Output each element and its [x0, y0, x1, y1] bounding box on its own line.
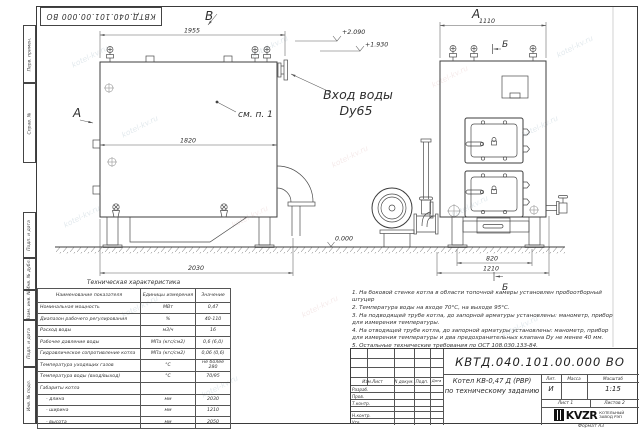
- note-item: 1. На боковой стенке котла в области топ…: [352, 290, 613, 304]
- tb-col-data: Дата: [430, 379, 443, 383]
- safety-valve-icon: [107, 47, 114, 63]
- drain-valve-icon: [221, 204, 228, 217]
- spec-value: не более 280: [196, 359, 231, 371]
- spec-table: Наименование показателя Единицы измерени…: [37, 288, 231, 429]
- gas-duct-elbow: [277, 166, 315, 236]
- spec-units: МПа (кгс/см2): [141, 337, 196, 348]
- furnace-door-lower: [465, 171, 530, 217]
- spec-name: Диапазон рабочего регулирования: [38, 314, 141, 325]
- inlet-dn-label: Dy65: [340, 103, 373, 118]
- spec-value: 0,06 (0,6): [196, 348, 231, 359]
- tb-scale-label: Масштаб: [587, 376, 639, 381]
- spec-name: Гидравлическое сопротивление котла: [38, 348, 141, 359]
- spec-value: 2030: [196, 394, 231, 405]
- safety-valve-icon: [530, 46, 537, 62]
- spec-units: °С: [141, 371, 196, 382]
- tb-lit-value: И: [541, 385, 561, 393]
- door-hinge: [523, 129, 530, 135]
- spec-name: Температура уходящих газов: [38, 359, 141, 371]
- table-row: - ширинамм1210: [38, 405, 231, 416]
- spec-name: Номинальная мощность: [38, 303, 141, 314]
- boiler-legs-front: [448, 217, 544, 248]
- product-title: Котел КВ-0,47 Д (РВР) по техническому за…: [443, 376, 541, 396]
- safety-valve-icon: [450, 46, 457, 62]
- tb-mass-label: Масса: [561, 376, 587, 381]
- drain-valve-icon: [113, 204, 120, 217]
- boiler-side-view: 1955 1820 2030 +2.090 +1.930 0.000 В А с…: [72, 9, 393, 276]
- table-row: Номинальная мощностьМВт0,47: [38, 303, 231, 314]
- view-label-a: А: [471, 7, 480, 21]
- tb-sheet: Лист 1: [541, 401, 590, 406]
- safety-valve-icon: [252, 47, 259, 63]
- table-row: Гидравлическое сопротивление котлаМПа (к…: [38, 348, 231, 359]
- table-row: Рабочее давление водыМПа (кгс/см2)0,6 (6…: [38, 337, 231, 348]
- section-mark-b-bottom: [494, 272, 503, 281]
- tb-lit-label: Лит.: [541, 376, 561, 381]
- spec-table-title: Техническая характеристика: [37, 279, 230, 286]
- dim-2030: 2030: [188, 265, 204, 272]
- water-inlet-flange: [278, 60, 288, 80]
- table-row: Диапазон рабочего регулирования%40-110: [38, 314, 231, 325]
- kvzr-logo-mark: [554, 409, 564, 421]
- kvzr-logo-caption: КОТЕЛЬНЫЙ ЗАВОД РЭП: [599, 411, 624, 420]
- spec-name: Расход воды: [38, 325, 141, 336]
- tb-role-tkontr: Т.контр.: [352, 401, 394, 406]
- spec-value: 0,6 (6,0): [196, 337, 231, 348]
- technical-notes: 1. На боковой стенке котла в области топ…: [352, 290, 613, 351]
- spec-header-row: Наименование показателя Единицы измерени…: [38, 289, 231, 303]
- dimensions-front: [437, 22, 549, 276]
- tb-scale-value: 1:15: [587, 385, 639, 393]
- table-row: Расход водым3/ч16: [38, 325, 231, 336]
- product-title-line2: по техническому заданию: [443, 386, 541, 396]
- furnace-door-upper: [465, 118, 530, 163]
- spec-units: мм: [141, 405, 196, 416]
- level-marks: [295, 36, 364, 247]
- view-arrow-a: А: [72, 106, 81, 120]
- spec-name: Габариты котла: [38, 383, 141, 394]
- spec-name: - ширина: [38, 405, 141, 416]
- note-item: 4. На отводящей трубе котла, до запорной…: [352, 328, 613, 342]
- outlet-pipe-valve: [420, 139, 433, 214]
- dim-1955: 1955: [184, 28, 200, 35]
- spec-units: м3/ч: [141, 325, 196, 336]
- format-label: Формат А3: [578, 424, 604, 429]
- product-title-line1: Котел КВ-0,47 Д (РВР): [443, 376, 541, 386]
- control-panel: [502, 76, 528, 98]
- spec-units: МВт: [141, 303, 196, 314]
- dimensions-side: [100, 31, 293, 276]
- level-plus-1930: +1.930: [365, 42, 388, 49]
- title-block: КВТД.040.101.00.000 ВО Изм.Лист N докум.…: [350, 348, 638, 424]
- left-connection: [422, 202, 433, 227]
- kvzr-logo: KVZR КОТЕЛЬНЫЙ ЗАВОД РЭП: [541, 407, 637, 423]
- dim-1820: 1820: [180, 138, 196, 145]
- spec-value: 70/95: [196, 371, 231, 382]
- tb-role-razrab: Разраб.: [352, 387, 394, 392]
- spec-units: °С: [141, 359, 196, 371]
- tb-col-ndokum: N докум.: [394, 379, 414, 384]
- safety-valve-icon: [471, 46, 478, 62]
- fan-stand: [380, 230, 414, 234]
- safety-valve-icon: [264, 47, 271, 63]
- dim-820: 820: [486, 256, 498, 263]
- note-item: 3. На подводящей трубе котла, до запорно…: [352, 313, 613, 327]
- tb-role-prov: Пров.: [352, 394, 394, 399]
- spec-name: Рабочее давление воды: [38, 337, 141, 348]
- boiler-legs-side: [103, 217, 274, 248]
- spec-header-units: Единицы измерения: [141, 289, 196, 303]
- level-plus-2090: +2.090: [342, 29, 365, 36]
- ground-line: [55, 247, 565, 253]
- table-row: Габариты котла: [38, 383, 231, 394]
- tb-role-nkontr: Н.контр.: [352, 413, 394, 418]
- spec-value: 16: [196, 325, 231, 336]
- kvzr-logo-text: KVZR: [566, 409, 597, 422]
- spec-units: мм: [141, 394, 196, 405]
- section-label-b-top: Б: [502, 40, 508, 50]
- spec-units: МПа (кгс/см2): [141, 348, 196, 359]
- kvzr-logo-caption-line2: ЗАВОД РЭП: [599, 415, 624, 419]
- tb-sheets: Листов 2: [590, 401, 639, 406]
- spec-value: 1210: [196, 405, 231, 416]
- table-row: Температура уходящих газов°Сне более 280: [38, 359, 231, 371]
- door-hinge: [523, 199, 530, 205]
- tb-role-utv: Утв.: [352, 420, 394, 425]
- tb-col-podp: Подп.: [414, 379, 430, 384]
- level-zero: 0.000: [335, 236, 353, 243]
- doc-number: КВТД.040.101.00.000 ВО: [443, 349, 637, 374]
- spec-name: - высота: [38, 417, 141, 428]
- spec-name: - длина: [38, 394, 141, 405]
- door-hinge: [523, 182, 530, 188]
- centreline-marks: [104, 83, 117, 167]
- spec-value: 40-110: [196, 314, 231, 325]
- smoke-fan: [372, 139, 438, 247]
- door-hinge: [523, 146, 530, 152]
- table-row: - высотамм2050: [38, 417, 231, 428]
- note-item: 2. Температура воды на входе 70°С, на вы…: [352, 305, 613, 312]
- inlet-label: Вход воды: [323, 87, 393, 102]
- spec-name: Температура воды (вход/выход): [38, 371, 141, 382]
- spec-value: 2050: [196, 417, 231, 428]
- dim-1110: 1110: [479, 18, 495, 25]
- spec-units: мм: [141, 417, 196, 428]
- table-row: Температура воды (вход/выход)°С70/95: [38, 371, 231, 382]
- right-side-valve: [546, 196, 568, 215]
- ground-hatch: [55, 247, 565, 253]
- spec-value: 0,47: [196, 303, 231, 314]
- dim-1210: 1210: [483, 266, 499, 273]
- table-row: - длинамм2030: [38, 394, 231, 405]
- drawing-sheet: kotel-kv.ru kotel-kv.ru kotel-kv.ru kote…: [0, 0, 644, 430]
- spec-units: %: [141, 314, 196, 325]
- spec-header-name: Наименование показателя: [38, 289, 141, 303]
- spec-table-block: Техническая характеристика Наименование …: [37, 279, 230, 429]
- section-mark-b-top: [493, 44, 502, 54]
- spec-value: [196, 383, 231, 394]
- spec-header-value: Значение: [196, 289, 231, 303]
- spec-units: [141, 383, 196, 394]
- view-label-v: В: [205, 9, 213, 23]
- tb-col-izm-list: Изм.Лист: [351, 379, 394, 384]
- see-note-callout: см. п. 1: [238, 110, 273, 120]
